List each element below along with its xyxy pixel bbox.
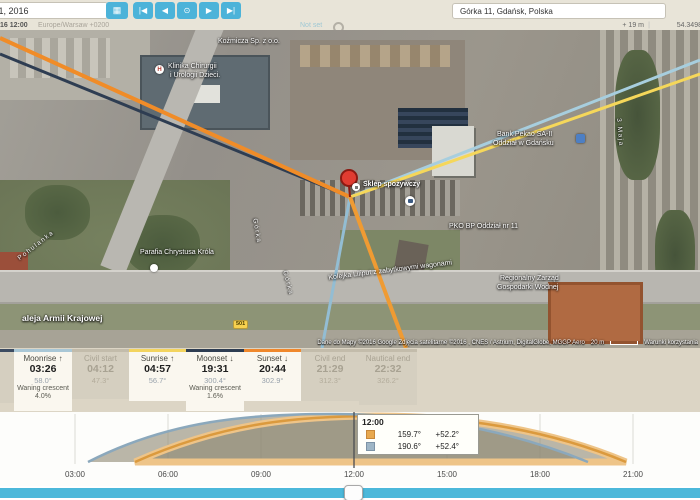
moon-altitude: +52.4° — [421, 442, 459, 451]
hospital-icon[interactable]: H — [155, 65, 164, 74]
map-label-clinic-2: i Urologii Dzieci. — [170, 72, 220, 79]
today-button[interactable]: ⊙ — [177, 2, 197, 19]
event-azimuth: 326.2° — [359, 376, 417, 385]
event-azimuth: 58.0° — [14, 376, 72, 385]
moon-phase-pct: 4.0% — [14, 393, 72, 401]
prev-date-button[interactable]: ◀ — [155, 2, 175, 19]
x-tick-0300: 03:00 — [65, 470, 85, 479]
shop-icon-dot — [355, 186, 358, 189]
event-time: 03:26 — [14, 363, 72, 376]
event-label: Moonrise ↑ — [14, 354, 72, 363]
current-datetime: 16 12:00 — [0, 22, 28, 29]
suncalc-app: August 1, 2016 ▦ |◀ ◀ ⊙ ▶ ▶| Górka 11, G… — [0, 0, 700, 500]
hospital-icon-letter: H — [157, 67, 161, 73]
event-cell-sunset: Sunset ↓ 20:44 302.9° — [244, 349, 301, 401]
shop-icon[interactable] — [352, 183, 360, 191]
attribution-text: Dane do Mapy ©2016 Google Zdjęcia sateli… — [317, 340, 585, 346]
altitude-chart[interactable]: 03:00 06:00 09:00 12:00 15:00 18:00 21:0… — [0, 412, 700, 486]
tooltip-sun-row: 159.7° +52.2° — [362, 428, 474, 440]
sun-swatch-icon — [366, 430, 375, 439]
not-set-label[interactable]: Not set — [300, 22, 322, 29]
first-date-button[interactable]: |◀ — [133, 2, 153, 19]
event-cell-moonset: Moonset ↓ 19:31 300.4° Waning crescent 1… — [186, 349, 244, 411]
event-label: Civil end — [301, 354, 359, 363]
moon-swatch-icon — [366, 442, 375, 451]
event-cell-nautical-end: Nautical end 22:32 326.2° — [359, 349, 417, 405]
last-date-button[interactable]: ▶| — [221, 2, 241, 19]
calendar-icon: ▦ — [113, 5, 122, 16]
road-badge-501: 501 — [233, 320, 248, 329]
event-cell-civil-start: Civil start 04:12 47.3° — [72, 349, 129, 399]
coord-separator: | — [648, 22, 650, 29]
altitude-curves — [0, 412, 700, 470]
x-tick-1500: 15:00 — [437, 470, 457, 479]
event-cell-clipped — [0, 349, 14, 403]
map-label-clinic-1: Klinika Chirurgii — [168, 63, 217, 70]
bus-glyph — [408, 199, 413, 203]
chart-tooltip: 12:00 159.7° +52.2° 190.6° +52.4° — [357, 414, 479, 455]
event-time: 04:12 — [72, 363, 129, 376]
event-time: 22:32 — [359, 363, 417, 376]
map-label-pekao-1: Bank Pekao SA-II — [497, 131, 552, 138]
event-cell-moonrise: Moonrise ↑ 03:26 58.0° Waning crescent 4… — [14, 349, 72, 411]
event-label: Nautical end — [359, 354, 417, 363]
map-label-pekao-2: Oddział w Gdańsku — [493, 140, 554, 147]
event-time: 20:44 — [244, 363, 301, 376]
calendar-button[interactable]: ▦ — [106, 2, 128, 19]
latitude-label: 54.3498 — [677, 22, 700, 29]
x-tick-0600: 06:00 — [158, 470, 178, 479]
scale-bar — [610, 341, 638, 345]
bank-icon[interactable] — [576, 134, 585, 143]
event-label: Sunset ↓ — [244, 354, 301, 363]
event-azimuth: 56.7° — [129, 376, 186, 385]
event-azimuth: 47.3° — [72, 376, 129, 385]
terms-link[interactable]: Warunki korzystania — [644, 340, 698, 346]
bus-stop-icon[interactable] — [405, 196, 415, 206]
x-tick-1200: 12:00 — [344, 470, 364, 479]
event-label: Moonset ↓ — [186, 354, 244, 363]
moon-phase-pct: 1.6% — [186, 393, 244, 401]
sun-altitude: +52.2° — [421, 430, 459, 439]
moon-phase-name: Waning crescent — [186, 385, 244, 393]
map-label-shop: Sklep spożywczy — [363, 181, 420, 188]
map-attribution: Dane do Mapy ©2016 Google Zdjęcia sateli… — [317, 340, 698, 346]
event-time: 04:57 — [129, 363, 186, 376]
sun-moon-events-panel: Moonrise ↑ 03:26 58.0° Waning crescent 4… — [0, 348, 700, 412]
event-time: 21:29 — [301, 363, 359, 376]
event-cell-civil-end: Civil end 21:29 312.3° — [301, 349, 359, 401]
moonrise-direction-line — [350, 60, 700, 197]
search-input[interactable]: Górka 11, Gdańsk, Polska — [452, 3, 666, 19]
x-tick-0900: 09:00 — [251, 470, 271, 479]
time-slider-handle[interactable] — [344, 485, 363, 500]
date-input[interactable]: August 1, 2016 — [0, 2, 108, 19]
tooltip-time: 12:00 — [362, 417, 474, 427]
elevation-label: + 19 m — [622, 22, 644, 29]
x-tick-2100: 21:00 — [623, 470, 643, 479]
x-tick-1800: 18:00 — [530, 470, 550, 479]
event-label: Civil start — [72, 354, 129, 363]
date-nav-group: |◀ ◀ ⊙ ▶ ▶| — [133, 2, 241, 19]
map-label-pko: PKO BP Oddział nr 11 — [449, 223, 518, 230]
marker-stem — [349, 186, 350, 197]
scale-label: 20 m — [591, 340, 604, 346]
time-slider — [0, 486, 700, 500]
next-date-button[interactable]: ▶ — [199, 2, 219, 19]
moon-azimuth: 190.6° — [377, 442, 421, 451]
sun-azimuth: 159.7° — [377, 430, 421, 439]
event-azimuth: 300.4° — [186, 376, 244, 385]
tooltip-moon-row: 190.6° +52.4° — [362, 440, 474, 452]
event-cell-sunrise: Sunrise ↑ 04:57 56.7° — [129, 349, 186, 401]
map-label-company: Koźmicza Sp. z o.o. — [218, 38, 280, 45]
timezone-label: Europe/Warsaw +0200 — [38, 22, 109, 29]
subbar: 16 12:00 Europe/Warsaw +0200 Not set + 1… — [0, 22, 700, 30]
map-label-parish: Parafia Chrystusa Króla — [140, 249, 214, 256]
event-time: 19:31 — [186, 363, 244, 376]
event-label: Sunrise ↑ — [129, 354, 186, 363]
sunset-direction-line — [0, 38, 350, 197]
event-azimuth: 312.3° — [301, 376, 359, 385]
map-label-rzgw-2: Gospodarki Wodnej — [497, 284, 558, 291]
satellite-map[interactable]: H Koźmicza Sp. z o.o. Klinika Chirurgii … — [0, 30, 700, 348]
church-icon[interactable] — [150, 264, 158, 272]
toolbar: August 1, 2016 ▦ |◀ ◀ ⊙ ▶ ▶| Górka 11, G… — [0, 0, 700, 22]
moon-phase-name: Waning crescent — [14, 385, 72, 393]
map-label-rzgw-1: Regionalny Zarząd — [500, 275, 559, 282]
sun-moon-lines-overlay — [0, 30, 700, 348]
event-azimuth: 302.9° — [244, 376, 301, 385]
map-label-armii-krajowej: aleja Armii Krajowej — [22, 313, 102, 323]
